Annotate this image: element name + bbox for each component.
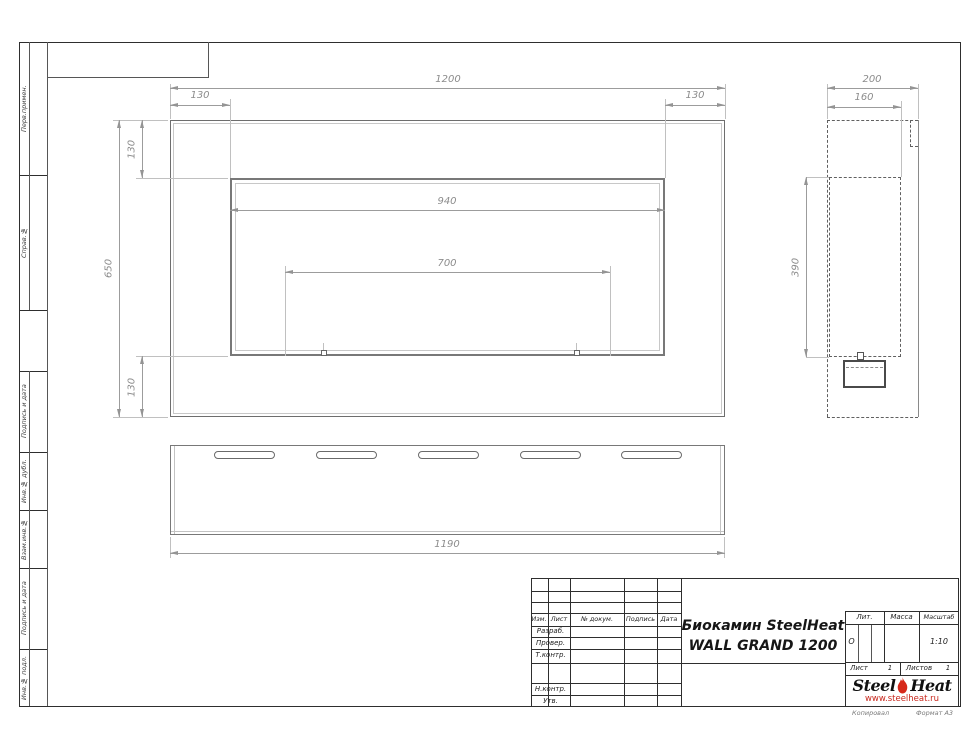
row-checked: Провер. (531, 640, 570, 648)
lit-label: Лит. (845, 614, 884, 622)
footer-format: Формат А3 (916, 709, 953, 717)
side-view-burner-box (843, 360, 886, 388)
col-date: Дата (657, 616, 681, 623)
stamp-perv-primen: Перв.примен. (19, 42, 29, 175)
dim-line-390 (806, 177, 807, 357)
product-title-line1: Биокамин SteelHeat (681, 618, 845, 634)
title-block-line (531, 663, 845, 664)
lit-value: О (845, 638, 858, 647)
side-view-burner-fuel-line (846, 367, 883, 368)
stamp-inv-podl: Инв.№ подл. (19, 649, 29, 707)
ext-line (285, 266, 286, 356)
dim-arrow (230, 208, 238, 212)
sheet-label: Лист (847, 665, 871, 673)
title-block-line (845, 611, 846, 707)
ext-line (230, 99, 231, 178)
side-view-right-edge (918, 120, 919, 417)
sheet-value: 1 (884, 665, 896, 673)
bottom-view-fold-left (174, 446, 175, 534)
dim-text-650: 650 (103, 238, 115, 298)
flame-icon (896, 677, 909, 694)
dim-text-1200: 1200 (418, 74, 478, 85)
title-block-line (871, 624, 872, 662)
dim-arrow (117, 120, 121, 128)
footer-copied: Копировал (852, 709, 889, 717)
dim-text-130-left: 130 (185, 90, 215, 101)
col-doc: № докум. (570, 616, 624, 623)
ext-line (113, 417, 168, 418)
frame-inner-left-line (47, 42, 48, 706)
title-block-line (531, 695, 681, 696)
dim-arrow (827, 86, 835, 90)
scale-value: 1:10 (919, 638, 959, 647)
row-developed: Разраб. (531, 628, 570, 636)
title-block-line (570, 578, 571, 707)
stamp-inv-dubl: Инв.№ дубл. (19, 452, 29, 510)
dim-arrow (910, 86, 918, 90)
dim-arrow (170, 551, 178, 555)
dim-line-700 (285, 272, 610, 273)
title-block-line (845, 624, 959, 625)
side-view-notch (910, 120, 918, 147)
burner-mark-right-tick (576, 343, 577, 350)
ext-line (610, 266, 611, 356)
dim-line-160 (827, 107, 901, 108)
logo-heat-text: Heat (910, 676, 951, 695)
col-list: Лист (548, 616, 570, 623)
dim-arrow (827, 105, 835, 109)
dim-arrow (140, 120, 144, 128)
ext-line (918, 84, 919, 119)
title-block-line (531, 637, 681, 638)
ext-line (806, 357, 829, 358)
row-ncontrol: Н.контр. (531, 686, 570, 694)
title-block-line (624, 578, 625, 707)
burner-mark-right (574, 350, 580, 356)
title-block-line (845, 662, 959, 663)
title-block-line (531, 602, 681, 603)
dim-arrow (717, 86, 725, 90)
mass-label: Масса (884, 614, 919, 622)
drawing-sheet: Перв.примен. Справ.№ Подпись и дата Инв.… (0, 0, 970, 749)
dim-arrow (804, 349, 808, 357)
stamp-mid-line-bottom (29, 371, 30, 706)
title-block-line (531, 649, 681, 650)
dim-arrow (665, 103, 673, 107)
sheets-value: 1 (941, 665, 955, 673)
corner-stamp-box (47, 42, 209, 78)
frame-right-line (960, 42, 961, 707)
dim-text-200: 200 (842, 74, 902, 85)
dim-arrow (140, 356, 144, 364)
sheets-label: Листов (904, 665, 934, 673)
title-block-line (657, 578, 658, 707)
dim-line-650 (119, 120, 120, 417)
col-izm: Изм. (528, 616, 550, 623)
product-title-line2: WALL GRAND 1200 (681, 638, 845, 654)
steelheat-logo: Steel Heat (847, 676, 957, 695)
ext-line (725, 84, 726, 119)
ext-line (806, 177, 829, 178)
burner-mark-left (321, 350, 327, 356)
title-block-line (531, 613, 681, 614)
dim-arrow (222, 103, 230, 107)
title-block-line (900, 662, 901, 675)
dim-arrow (140, 409, 144, 417)
dim-text-160: 160 (834, 92, 894, 103)
row-tcontrol: Т.контр. (531, 652, 570, 660)
dim-line-940 (230, 210, 665, 211)
title-block-line (531, 683, 681, 684)
vent-slot-5 (621, 451, 682, 459)
dim-text-130-top: 130 (126, 126, 138, 172)
scale-label: Масштаб (919, 614, 959, 621)
title-block-line (858, 624, 859, 662)
dim-line-1190 (170, 553, 725, 554)
row-approved: Утв. (531, 698, 570, 706)
ext-line (665, 99, 666, 178)
side-view-left-edge (827, 120, 828, 417)
stamp-podpis-data-1: Подпись и дата (19, 371, 29, 452)
dim-arrow (893, 105, 901, 109)
dim-text-700: 700 (417, 258, 477, 269)
ext-line (901, 101, 902, 177)
ext-line (136, 178, 228, 179)
stamp-sprav-no: Справ.№ (19, 175, 29, 310)
dim-text-940: 940 (417, 196, 477, 207)
burner-mark-left-tick (323, 343, 324, 350)
dim-text-130-bottom: 130 (126, 362, 138, 412)
vent-slot-4 (520, 451, 581, 459)
dim-line-130-left (170, 105, 230, 106)
dim-line-130-right (665, 105, 725, 106)
side-view-top-edge (827, 120, 918, 121)
vent-slot-1 (214, 451, 275, 459)
dim-text-130-right: 130 (680, 90, 710, 101)
dim-text-1190: 1190 (417, 539, 477, 550)
bottom-view-fold-right (720, 446, 721, 534)
side-view-opening-hidden (829, 177, 901, 357)
col-sign: Подпись (624, 616, 657, 623)
ext-line (136, 356, 228, 357)
title-block-line (531, 591, 681, 592)
logo-url: www.steelheat.ru (845, 694, 959, 704)
vent-slot-2 (316, 451, 377, 459)
dim-arrow (170, 103, 178, 107)
dim-arrow (657, 208, 665, 212)
stamp-mid-line-top (29, 42, 30, 310)
dim-arrow (170, 86, 178, 90)
dim-text-390: 390 (790, 237, 802, 297)
dim-line-130-bottom (142, 356, 143, 417)
dim-arrow (117, 409, 121, 417)
logo-steel-text: Steel (853, 676, 896, 695)
side-view-burner-tab (857, 352, 864, 360)
stamp-divider (19, 310, 47, 311)
dim-arrow (804, 177, 808, 185)
dim-arrow (717, 551, 725, 555)
side-view-bottom-edge (827, 417, 918, 418)
dim-line-200 (827, 88, 918, 89)
bottom-view-fold-bottom (171, 531, 724, 532)
vent-slot-3 (418, 451, 479, 459)
dim-line-1200 (170, 88, 725, 89)
stamp-vzam-inv: Взам.инв.№ (19, 510, 29, 568)
title-block-line (845, 611, 959, 612)
stamp-podpis-data-2: Подпись и дата (19, 568, 29, 649)
dim-arrow (602, 270, 610, 274)
dim-arrow (140, 170, 144, 178)
dim-arrow (285, 270, 293, 274)
dim-arrow (717, 103, 725, 107)
